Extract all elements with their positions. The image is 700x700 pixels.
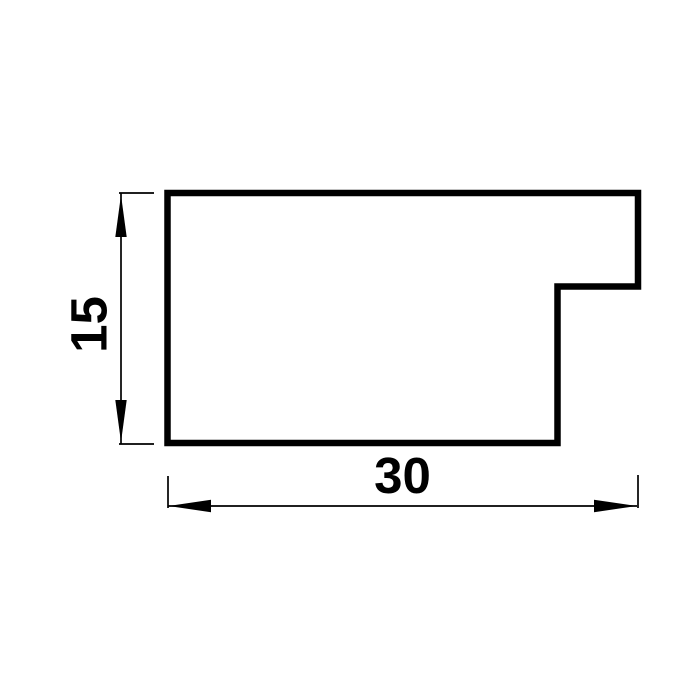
svg-text:15: 15	[61, 296, 118, 353]
svg-text:30: 30	[374, 447, 431, 504]
